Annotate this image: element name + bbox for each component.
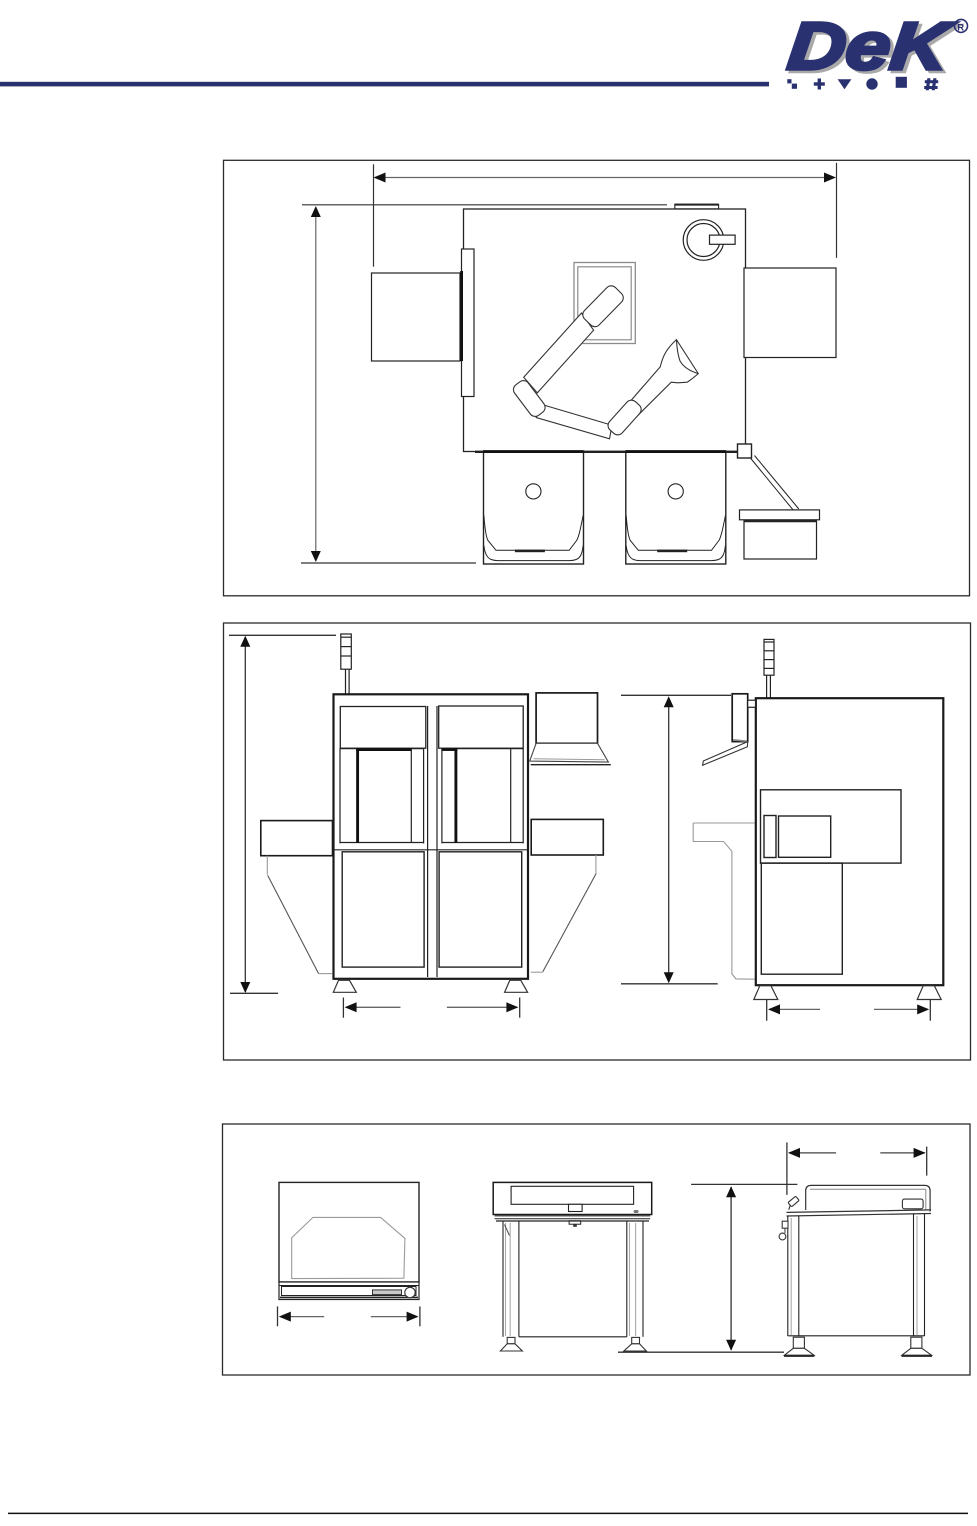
svg-text:DeK: DeK [784, 9, 957, 84]
svg-text:R: R [957, 22, 964, 33]
